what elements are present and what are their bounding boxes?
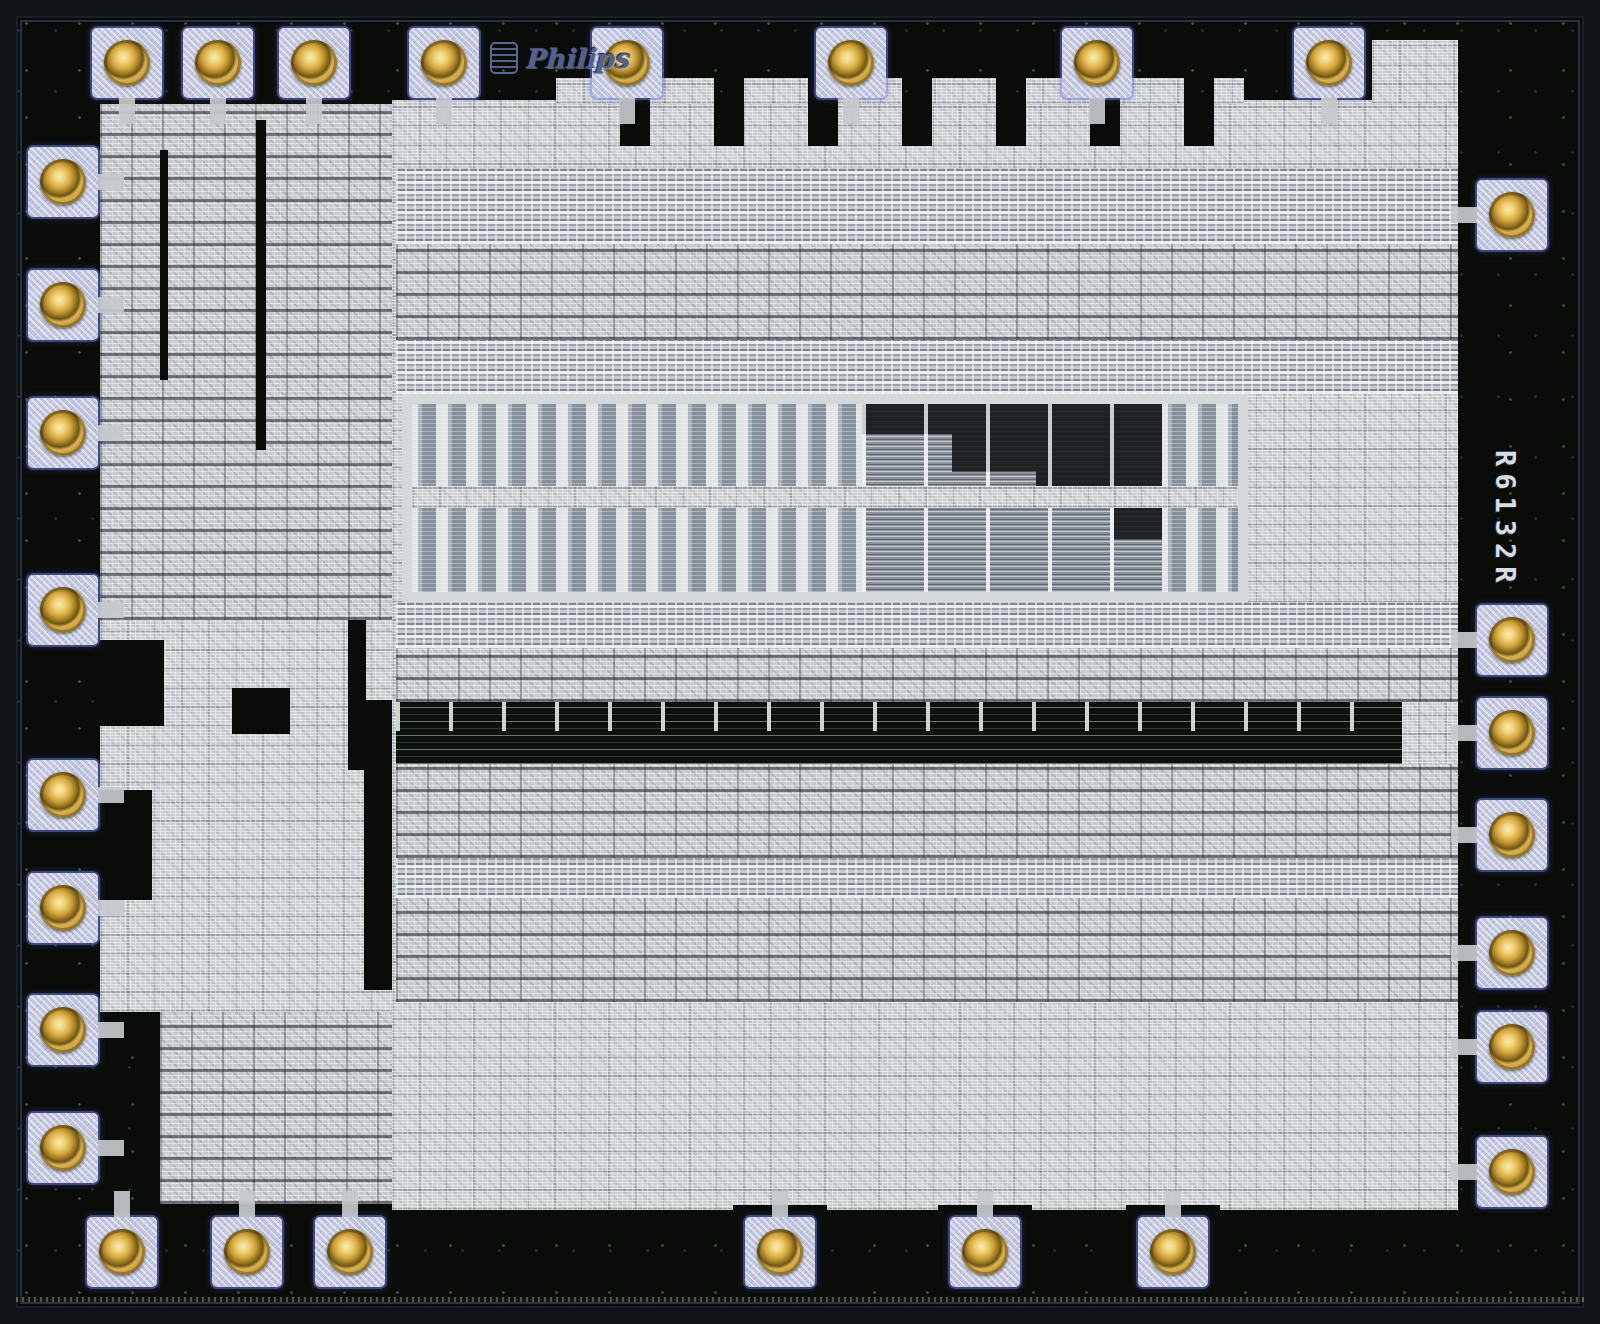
bond-pad (1477, 180, 1547, 250)
gold-ball-bond (327, 1229, 373, 1275)
routing-gap (256, 120, 266, 450)
bond-pad (87, 1217, 157, 1287)
bond-pad (1477, 918, 1547, 988)
substrate-gap (364, 700, 394, 990)
substrate-gap (232, 688, 290, 734)
gold-ball-bond (99, 1229, 145, 1275)
bond-pad (183, 28, 253, 98)
bond-pad (409, 28, 479, 98)
part-number-marking: R6132R (1490, 450, 1521, 590)
bond-pad (816, 28, 886, 98)
bond-pad (315, 1217, 385, 1287)
bond-pad (279, 28, 349, 98)
bond-pad (28, 270, 98, 340)
logic-block-top-right (1372, 40, 1458, 104)
rom-array (402, 394, 1248, 602)
rom-array-divider (412, 486, 1238, 508)
bond-pad (1477, 1137, 1547, 1207)
gold-ball-bond (1489, 1024, 1535, 1070)
bond-pad (950, 1217, 1020, 1287)
bond-pad (92, 28, 162, 98)
cell-row-band (396, 898, 1458, 1002)
cell-row-band (396, 244, 1458, 340)
gold-ball-bond (421, 40, 467, 86)
bond-pad (28, 147, 98, 217)
gold-ball-bond (195, 40, 241, 86)
gold-ball-bond (962, 1229, 1008, 1275)
bond-pad (28, 760, 98, 830)
gold-ball-bond (40, 772, 86, 818)
gold-ball-bond (40, 410, 86, 456)
bond-pad (1062, 28, 1132, 98)
gold-ball-bond (224, 1229, 270, 1275)
gold-ball-bond (40, 1125, 86, 1171)
gold-ball-bond (1150, 1229, 1196, 1275)
bond-pad (745, 1217, 815, 1287)
gold-ball-bond (40, 282, 86, 328)
dark-bus-band (396, 702, 1402, 764)
logic-block-bottom-left (160, 1012, 394, 1204)
cell-row-band (396, 648, 1458, 702)
gold-ball-bond (1489, 930, 1535, 976)
gold-ball-bond (104, 40, 150, 86)
bond-pad (1477, 698, 1547, 768)
bond-pad (28, 995, 98, 1065)
bond-pad (1138, 1217, 1208, 1287)
logic-block-top-left (100, 104, 394, 620)
gold-ball-bond (40, 885, 86, 931)
top-edge-notches (556, 100, 1244, 146)
philips-logo-text: Philips (524, 43, 629, 74)
bus-via-stubs (396, 702, 1402, 731)
gold-ball-bond (40, 1007, 86, 1053)
gold-ball-bond (1489, 617, 1535, 663)
substrate-gap (100, 640, 164, 726)
substrate-gap (100, 790, 152, 900)
philips-logo: Philips (490, 42, 629, 74)
bond-pad (28, 398, 98, 468)
bus-channel-band (396, 340, 1458, 394)
bond-pad (1477, 1012, 1547, 1082)
gold-ball-bond (1489, 812, 1535, 858)
cell-row-band (396, 764, 1458, 858)
bus-channel-band (396, 602, 1458, 648)
chip-die-photo: Philips R6132R (0, 0, 1600, 1324)
bond-pad (1477, 800, 1547, 870)
gold-ball-bond (1489, 1149, 1535, 1195)
gold-ball-bond (40, 587, 86, 633)
bond-pad (28, 873, 98, 943)
bus-channel-band (396, 858, 1458, 898)
gold-ball-bond (1074, 40, 1120, 86)
gold-ball-bond (291, 40, 337, 86)
gold-ball-bond (828, 40, 874, 86)
gold-ball-bond (1489, 710, 1535, 756)
gold-ball-bond (1306, 40, 1352, 86)
bond-pad (28, 1113, 98, 1183)
routing-gap (160, 150, 168, 380)
bond-pad (1294, 28, 1364, 98)
philips-emblem-icon (490, 42, 518, 74)
gold-ball-bond (757, 1229, 803, 1275)
gold-ball-bond (40, 159, 86, 205)
bus-channel-band (396, 168, 1458, 244)
bond-pad (1477, 605, 1547, 675)
gold-ball-bond (1489, 192, 1535, 238)
bond-pad (212, 1217, 282, 1287)
bond-pad (28, 575, 98, 645)
